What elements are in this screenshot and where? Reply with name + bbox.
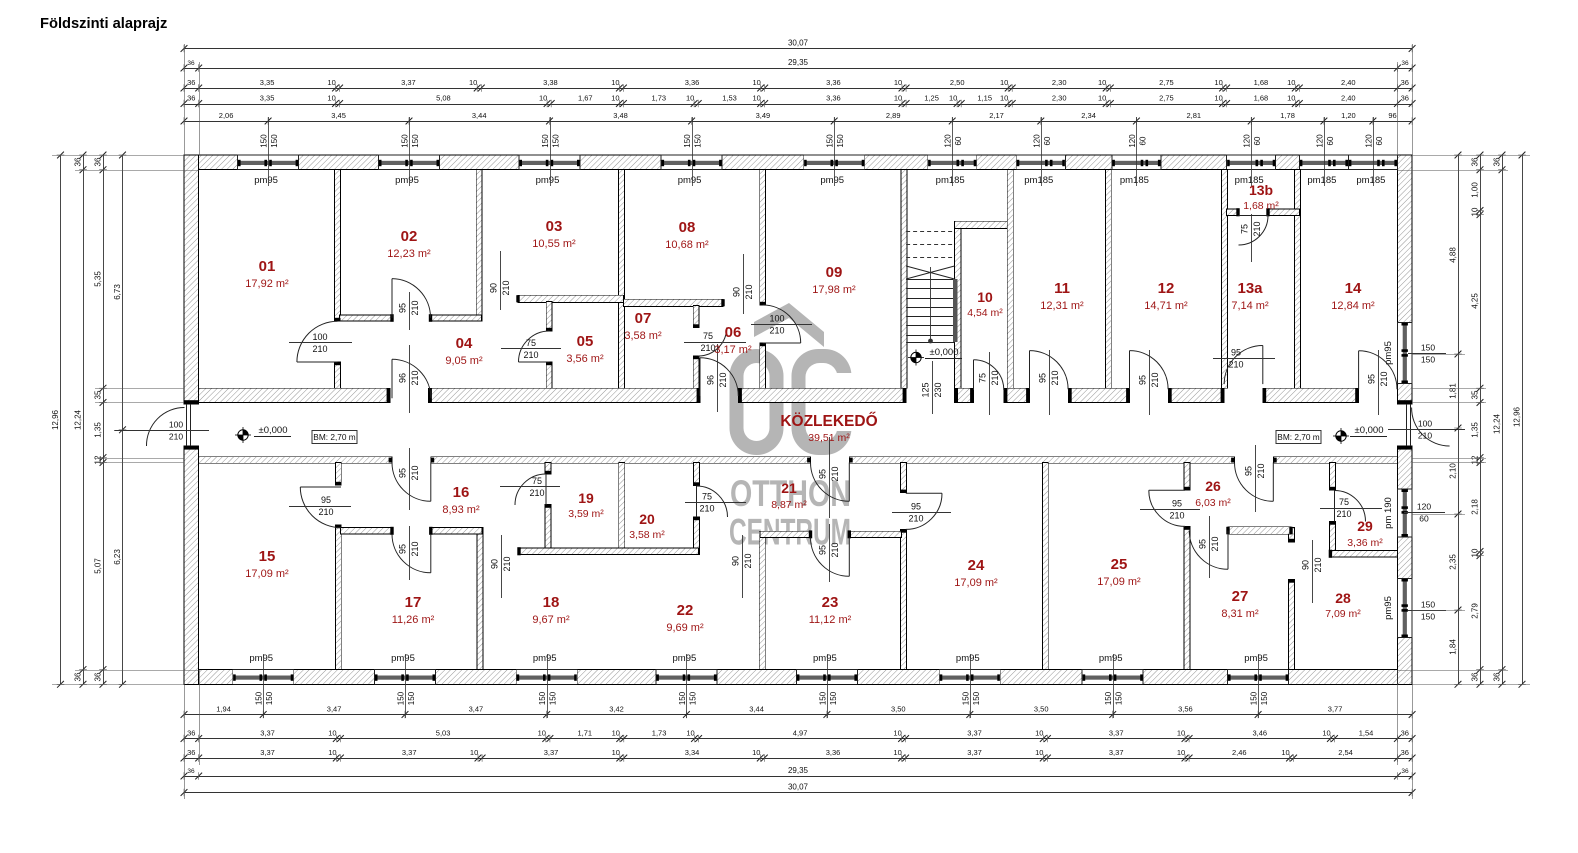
svg-text:75: 75 [702,492,712,502]
svg-text:3,45: 3,45 [331,111,346,120]
svg-text:2,10: 2,10 [1449,463,1458,479]
svg-text:9,05 m²: 9,05 m² [445,355,483,367]
svg-text:1,54: 1,54 [1359,729,1374,738]
svg-text:150: 150 [255,691,264,705]
svg-text:120: 120 [1315,134,1324,148]
svg-text:29,35: 29,35 [788,58,809,67]
svg-text:10: 10 [611,94,619,103]
svg-text:2,34: 2,34 [1081,111,1096,120]
svg-text:210: 210 [312,344,327,354]
svg-text:95: 95 [398,544,408,554]
svg-text:17,98 m²: 17,98 m² [812,284,856,296]
svg-text:36: 36 [1401,729,1409,738]
svg-text:3,37: 3,37 [1109,729,1124,738]
svg-text:60: 60 [954,136,963,145]
svg-text:36: 36 [187,78,195,87]
svg-text:75: 75 [1240,224,1250,234]
svg-text:9,69 m²: 9,69 m² [666,622,704,634]
svg-text:Földszinti alaprajz: Földszinti alaprajz [40,16,167,32]
svg-text:5,03: 5,03 [436,729,451,738]
svg-text:3,47: 3,47 [327,705,342,714]
svg-text:pm95: pm95 [391,653,415,664]
svg-text:36: 36 [1401,768,1409,775]
svg-text:15: 15 [259,548,276,565]
svg-text:3,36: 3,36 [826,78,841,87]
svg-text:125: 125 [921,382,931,397]
svg-text:10: 10 [470,748,478,757]
svg-text:pm95: pm95 [673,653,697,664]
svg-text:2,30: 2,30 [1052,94,1067,103]
svg-text:35: 35 [94,390,103,399]
svg-text:210: 210 [410,370,420,385]
svg-text:150: 150 [829,691,838,705]
svg-text:120: 120 [944,134,953,148]
svg-text:39,51 m²: 39,51 m² [808,432,850,444]
svg-text:BM: 2,70 m: BM: 2,70 m [313,432,356,442]
svg-text:10: 10 [1035,729,1043,738]
svg-text:6,03 m²: 6,03 m² [1195,497,1231,509]
svg-text:75: 75 [978,373,988,383]
svg-text:210: 210 [743,553,753,568]
svg-text:9,67 m²: 9,67 m² [532,614,570,626]
svg-text:2,30: 2,30 [1052,78,1067,87]
svg-text:10: 10 [1098,78,1106,87]
svg-text:210: 210 [1379,371,1389,386]
svg-text:3,44: 3,44 [472,111,487,120]
svg-text:36: 36 [1401,60,1409,67]
svg-text:95: 95 [818,545,828,555]
svg-text:150: 150 [552,134,561,148]
svg-text:150: 150 [683,134,692,148]
svg-text:5,35: 5,35 [94,271,103,287]
svg-text:36: 36 [1493,672,1502,681]
svg-text:3,56 m²: 3,56 m² [566,353,604,365]
svg-text:3,36 m²: 3,36 m² [1347,537,1383,549]
svg-text:20: 20 [639,511,655,527]
svg-text:10: 10 [1287,94,1295,103]
svg-text:120: 120 [1417,502,1431,512]
svg-text:90: 90 [489,283,499,293]
svg-text:pm95: pm95 [254,175,278,186]
svg-text:pm95: pm95 [1383,341,1394,365]
svg-text:29,35: 29,35 [788,766,809,775]
svg-text:pm95: pm95 [395,175,419,186]
svg-text:210: 210 [830,466,840,481]
svg-text:2,46: 2,46 [1232,748,1247,757]
svg-text:210: 210 [699,504,714,514]
svg-text:17,09 m²: 17,09 m² [245,568,289,580]
svg-text:17,92 m²: 17,92 m² [245,278,289,290]
svg-text:23: 23 [822,594,839,611]
svg-text:95: 95 [1038,373,1048,383]
svg-text:2,89: 2,89 [886,111,901,120]
svg-text:210: 210 [1252,221,1262,236]
svg-text:150: 150 [265,691,274,705]
svg-text:210: 210 [990,370,1000,385]
svg-text:11,26 m²: 11,26 m² [392,614,435,626]
svg-text:95: 95 [1244,466,1254,476]
svg-text:150: 150 [549,691,558,705]
svg-text:210: 210 [410,465,420,480]
svg-text:150: 150 [538,691,547,705]
svg-text:210: 210 [700,343,715,353]
svg-text:01: 01 [259,258,276,275]
svg-text:10: 10 [539,94,547,103]
svg-text:27: 27 [1232,588,1249,605]
svg-text:36: 36 [1401,94,1409,103]
svg-text:95: 95 [321,495,331,505]
svg-text:3,42: 3,42 [609,705,624,714]
svg-text:17,09 m²: 17,09 m² [1097,576,1141,588]
svg-text:210: 210 [830,542,840,557]
svg-text:75: 75 [526,338,536,348]
svg-text:10: 10 [1214,78,1222,87]
svg-text:8,31 m²: 8,31 m² [1221,608,1259,620]
svg-text:4,97: 4,97 [793,729,808,738]
svg-text:210: 210 [1150,372,1160,387]
svg-text:3,59 m²: 3,59 m² [568,508,604,520]
svg-text:2,18: 2,18 [1471,499,1480,515]
svg-text:3,49: 3,49 [756,111,771,120]
svg-text:36: 36 [187,729,195,738]
svg-text:150: 150 [678,691,687,705]
svg-text:10: 10 [538,729,546,738]
svg-text:150: 150 [1260,691,1269,705]
svg-text:150: 150 [836,134,845,148]
svg-text:11,12 m²: 11,12 m² [809,614,852,626]
svg-text:210: 210 [1313,557,1323,572]
svg-text:pm95: pm95 [1099,653,1123,664]
svg-text:±0,000: ±0,000 [259,425,288,436]
svg-text:12,31 m²: 12,31 m² [1040,300,1084,312]
svg-text:96: 96 [398,373,408,383]
svg-text:10: 10 [752,748,760,757]
svg-text:60: 60 [1375,136,1384,145]
svg-text:7,14 m²: 7,14 m² [1231,300,1269,312]
svg-text:3,38: 3,38 [543,78,558,87]
svg-text:210: 210 [769,326,784,336]
svg-text:95: 95 [818,469,828,479]
svg-text:19: 19 [578,490,594,506]
svg-text:16: 16 [453,484,470,501]
svg-text:09: 09 [826,264,843,281]
svg-text:02: 02 [401,228,418,245]
svg-text:12,96: 12,96 [1513,406,1522,427]
svg-text:10: 10 [328,748,336,757]
svg-text:150: 150 [1250,691,1259,705]
svg-text:3,35: 3,35 [260,78,275,87]
svg-text:8,87 m²: 8,87 m² [771,499,807,511]
svg-text:pm185: pm185 [1024,175,1053,186]
svg-text:7,09 m²: 7,09 m² [1325,608,1361,620]
svg-text:3,48: 3,48 [613,111,628,120]
svg-text:10: 10 [1322,729,1330,738]
svg-text:11: 11 [1054,280,1070,297]
svg-text:1,67: 1,67 [578,94,593,103]
svg-text:90: 90 [1301,560,1311,570]
svg-text:pm95: pm95 [536,175,560,186]
svg-text:26: 26 [1205,478,1221,494]
svg-text:150: 150 [407,691,416,705]
svg-text:150: 150 [260,134,269,148]
svg-text:2,79: 2,79 [1471,603,1480,619]
svg-text:10: 10 [894,94,902,103]
svg-text:pm95: pm95 [249,653,273,664]
svg-text:2,17: 2,17 [989,111,1004,120]
svg-text:3,37: 3,37 [967,729,982,738]
svg-text:210: 210 [410,300,420,315]
svg-text:10: 10 [327,78,335,87]
svg-text:1,15: 1,15 [977,94,992,103]
svg-text:95: 95 [1198,539,1208,549]
svg-text:pm185: pm185 [936,175,965,186]
svg-text:pm95: pm95 [678,175,702,186]
svg-text:60: 60 [1043,136,1052,145]
svg-text:10: 10 [611,78,619,87]
svg-text:1,25: 1,25 [924,94,939,103]
svg-text:1,35: 1,35 [1471,422,1480,438]
svg-text:150: 150 [1421,343,1435,353]
svg-text:36: 36 [1493,157,1502,166]
svg-text:36: 36 [1401,78,1409,87]
svg-text:10: 10 [327,94,335,103]
svg-text:1,94: 1,94 [216,705,231,714]
svg-text:95: 95 [398,468,408,478]
svg-text:210: 210 [501,280,511,295]
svg-text:230: 230 [933,382,943,397]
svg-text:pm95: pm95 [1383,596,1394,620]
svg-text:12: 12 [1471,455,1480,464]
svg-text:07: 07 [635,310,652,327]
svg-text:10: 10 [1098,94,1106,103]
svg-text:10: 10 [753,78,761,87]
svg-text:10: 10 [1177,748,1185,757]
svg-text:pm95: pm95 [820,175,844,186]
svg-text:3,37: 3,37 [402,748,417,757]
svg-text:30,07: 30,07 [788,39,809,48]
svg-text:13a: 13a [1237,280,1263,297]
svg-text:14: 14 [1345,280,1362,297]
svg-text:150: 150 [818,691,827,705]
svg-text:10: 10 [612,748,620,757]
svg-text:18: 18 [543,594,560,611]
svg-text:3,37: 3,37 [1109,748,1124,757]
svg-text:3,36: 3,36 [685,78,700,87]
svg-text:3,50: 3,50 [1034,705,1049,714]
svg-text:05: 05 [577,333,594,350]
svg-text:3,47: 3,47 [469,705,484,714]
svg-text:24: 24 [968,557,985,574]
svg-text:36: 36 [1471,672,1480,681]
svg-text:1,84: 1,84 [1449,639,1458,655]
svg-text:10: 10 [1281,748,1289,757]
svg-text:1,68: 1,68 [1254,78,1269,87]
svg-text:25: 25 [1111,556,1128,573]
svg-text:1,20: 1,20 [1341,111,1356,120]
svg-text:150: 150 [826,134,835,148]
svg-text:96: 96 [1388,111,1396,120]
svg-text:95: 95 [1172,499,1182,509]
svg-text:06: 06 [725,324,742,341]
svg-text:210: 210 [1418,431,1432,441]
svg-text:210: 210 [1210,536,1220,551]
svg-text:10: 10 [1035,748,1043,757]
svg-text:210: 210 [1336,509,1351,519]
svg-text:6,73: 6,73 [113,284,122,300]
svg-text:95: 95 [1367,374,1377,384]
svg-text:22: 22 [677,602,694,619]
svg-text:10: 10 [1000,94,1008,103]
svg-text:90: 90 [731,556,741,566]
svg-text:29: 29 [1357,518,1373,534]
svg-text:1,53: 1,53 [722,94,737,103]
svg-text:10,55 m²: 10,55 m² [532,238,576,250]
svg-text:3,56: 3,56 [1178,705,1193,714]
svg-text:75: 75 [532,476,542,486]
svg-text:6,23: 6,23 [113,549,122,565]
svg-text:3,35: 3,35 [260,94,275,103]
svg-text:36: 36 [74,157,83,166]
svg-text:12,96: 12,96 [51,409,60,430]
svg-text:pm95: pm95 [813,653,837,664]
svg-text:36: 36 [187,748,195,757]
svg-text:10: 10 [977,289,993,305]
svg-text:10: 10 [1287,78,1295,87]
svg-text:10: 10 [1177,729,1185,738]
svg-text:210: 210 [1169,511,1184,521]
svg-text:12,24: 12,24 [1493,413,1502,434]
svg-text:10: 10 [612,729,620,738]
svg-text:120: 120 [1032,134,1041,148]
svg-text:60: 60 [1253,136,1262,145]
svg-text:10: 10 [1000,78,1008,87]
svg-text:150: 150 [411,134,420,148]
svg-text:210: 210 [744,284,754,299]
svg-text:36: 36 [1401,748,1409,757]
svg-text:2,54: 2,54 [1338,748,1353,757]
svg-text:210: 210 [529,488,544,498]
svg-text:210: 210 [718,372,728,387]
svg-text:210: 210 [523,350,538,360]
svg-text:12: 12 [1158,280,1175,297]
svg-text:12,84 m²: 12,84 m² [1331,300,1375,312]
svg-text:4,25: 4,25 [1471,293,1480,309]
svg-text:3,37: 3,37 [967,748,982,757]
svg-text:90: 90 [732,287,742,297]
svg-text:1,68 m²: 1,68 m² [1243,200,1279,212]
svg-text:1,73: 1,73 [651,94,666,103]
svg-text:3,34: 3,34 [685,748,700,757]
svg-text:10: 10 [894,78,902,87]
svg-text:4,88: 4,88 [1449,247,1458,263]
svg-text:pm95: pm95 [956,653,980,664]
svg-text:±0,000: ±0,000 [930,347,959,358]
svg-text:210: 210 [169,432,183,442]
svg-text:210: 210 [908,514,923,524]
svg-text:1,71: 1,71 [577,729,592,738]
svg-text:12,23 m²: 12,23 m² [387,248,431,260]
svg-text:36: 36 [74,672,83,681]
svg-text:75: 75 [703,331,713,341]
svg-text:36: 36 [94,157,103,166]
svg-text:3,44: 3,44 [749,705,764,714]
svg-text:1,00: 1,00 [1471,182,1480,198]
svg-text:3,36: 3,36 [826,748,841,757]
svg-text:150: 150 [401,134,410,148]
svg-text:35: 35 [1471,390,1480,399]
svg-text:2,50: 2,50 [950,78,965,87]
svg-text:3,17 m²: 3,17 m² [714,344,752,356]
svg-text:4,54 m²: 4,54 m² [967,307,1003,319]
svg-text:1,78: 1,78 [1280,111,1295,120]
svg-text:3,37: 3,37 [544,748,559,757]
svg-text:3,37: 3,37 [401,78,416,87]
svg-text:3,37: 3,37 [260,729,275,738]
svg-text:pm185: pm185 [1120,175,1149,186]
svg-text:120: 120 [1364,134,1373,148]
svg-text:10: 10 [1471,207,1480,216]
svg-text:60: 60 [1419,514,1429,524]
svg-text:96: 96 [706,375,716,385]
svg-text:210: 210 [318,507,333,517]
svg-text:2,40: 2,40 [1341,94,1356,103]
svg-text:95: 95 [911,502,921,512]
svg-text:pm95: pm95 [1244,653,1268,664]
svg-text:150: 150 [1421,355,1435,365]
svg-text:36: 36 [187,768,195,775]
svg-text:10: 10 [893,729,901,738]
svg-text:10,68 m²: 10,68 m² [665,239,709,251]
svg-text:28: 28 [1335,590,1351,606]
svg-text:04: 04 [456,335,473,352]
svg-text:17,09 m²: 17,09 m² [954,577,998,589]
svg-text:36: 36 [187,94,195,103]
svg-text:3,77: 3,77 [1328,705,1343,714]
svg-text:100: 100 [1418,419,1432,429]
svg-text:95: 95 [398,303,408,313]
svg-text:95: 95 [1231,348,1241,358]
svg-text:17: 17 [405,594,422,611]
svg-text:30,07: 30,07 [788,783,809,792]
svg-text:150: 150 [541,134,550,148]
svg-text:90: 90 [490,559,500,569]
svg-text:1,73: 1,73 [652,729,667,738]
svg-text:12: 12 [94,455,103,464]
svg-text:10: 10 [328,729,336,738]
svg-text:120: 120 [1243,134,1252,148]
svg-text:100: 100 [169,420,183,430]
svg-text:08: 08 [679,219,696,236]
svg-text:10: 10 [1471,548,1480,557]
svg-text:10: 10 [686,729,694,738]
svg-text:10: 10 [753,94,761,103]
svg-text:3,50: 3,50 [891,705,906,714]
svg-text:150: 150 [397,691,406,705]
svg-text:210: 210 [410,541,420,556]
svg-text:36: 36 [187,60,195,67]
svg-text:10: 10 [1214,94,1222,103]
svg-text:1,68: 1,68 [1254,94,1269,103]
svg-text:2,40: 2,40 [1341,78,1356,87]
svg-text:1,81: 1,81 [1449,383,1458,399]
svg-text:100: 100 [312,332,327,342]
svg-text:150: 150 [1421,612,1435,622]
svg-text:1,35: 1,35 [94,422,103,438]
svg-text:60: 60 [1138,136,1147,145]
svg-text:8,93 m²: 8,93 m² [442,504,480,516]
svg-text:150: 150 [961,691,970,705]
svg-text:±0,000: ±0,000 [1355,425,1384,436]
